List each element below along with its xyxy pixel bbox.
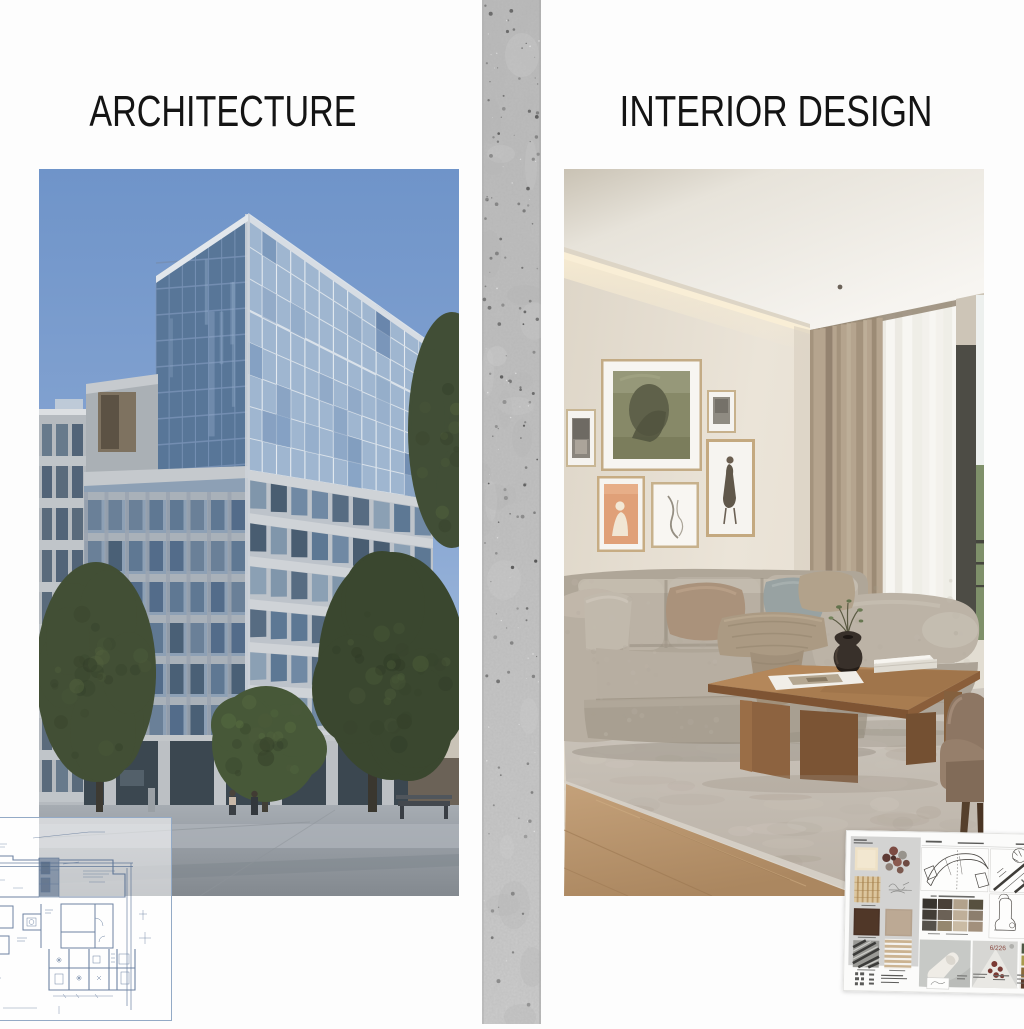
svg-text:6/226: 6/226	[990, 945, 1007, 952]
